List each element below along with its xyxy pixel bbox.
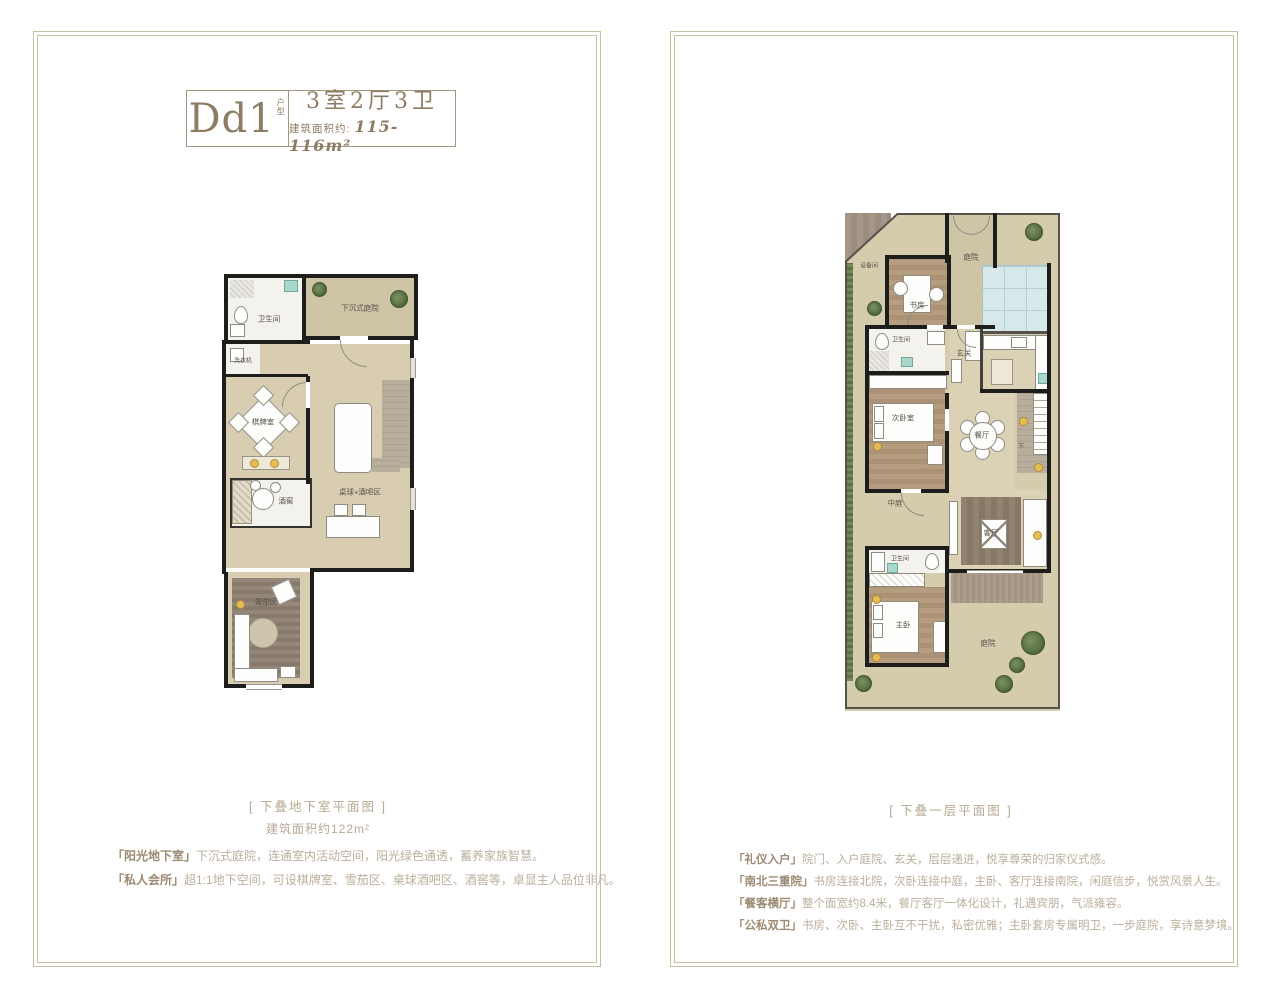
wall <box>947 255 951 329</box>
door-gap <box>927 325 943 329</box>
room-label: 玄关 <box>957 348 972 359</box>
room-label: 次卧室 <box>892 413 915 424</box>
wall <box>980 389 1049 393</box>
toilet <box>234 306 248 324</box>
entry-stairs <box>230 280 254 298</box>
wardrobe <box>869 375 947 389</box>
sink <box>230 324 245 337</box>
door-gap <box>340 336 368 340</box>
room-label: 客厅 <box>984 528 999 539</box>
unit-title-block: Dd1 户型 3室2厅3卫 建筑面积约: 115-116m² <box>186 90 456 147</box>
bar-stool <box>352 504 366 516</box>
shower <box>869 351 889 371</box>
room-label: 酒窖 <box>279 496 294 507</box>
room-label: 主卧 <box>896 620 911 631</box>
first-floor-caption: [ 下叠一层平面图 ] <box>751 800 1151 819</box>
plant <box>312 282 327 297</box>
room-label: 雪茄区 <box>255 597 278 608</box>
window <box>410 358 416 378</box>
room-label: 设备间 <box>860 261 878 270</box>
window <box>410 488 416 510</box>
water-feature <box>982 265 1050 333</box>
wall <box>869 371 949 375</box>
door-gap <box>945 409 949 431</box>
room-label: 餐厅 <box>975 430 990 441</box>
pool-edge <box>980 331 1050 334</box>
wall <box>865 325 869 493</box>
door-gap <box>901 489 921 493</box>
pillow <box>874 423 884 439</box>
chair <box>270 482 281 493</box>
feature-line: 「礼仪入户」院门、入户庭院、玄关，层层递进，悦享尊荣的归家仪式感。 <box>733 849 1239 871</box>
feature-line: 「私人会所」超1:1地下空间，可设棋牌室、雪茄区、桌球酒吧区、酒窖等，卓显主人品… <box>112 868 621 892</box>
plant <box>390 290 408 308</box>
kitchen-island <box>991 359 1013 385</box>
round-rug <box>248 618 278 648</box>
lamp <box>872 653 881 662</box>
stair-landing <box>1017 453 1047 473</box>
wall <box>224 572 228 688</box>
bar-counter <box>326 516 380 538</box>
billiard-table <box>334 403 372 473</box>
tree <box>1009 657 1025 673</box>
feature-tag: 「公私双卫」 <box>733 920 802 932</box>
room-label: 桌球+酒吧区 <box>339 487 381 498</box>
room-label: 庭院 <box>981 638 996 649</box>
feature-text: 整个面宽约8.4米，餐厅客厅一体化设计，礼遇宾朋，气派雍容。 <box>802 898 1128 910</box>
room-label: 下沉式庭院 <box>341 303 379 314</box>
unit-spec: 3室2厅3卫 <box>306 83 438 115</box>
room-label: 洗衣机 <box>234 356 252 365</box>
hedge <box>847 263 853 681</box>
tree <box>867 301 882 316</box>
chair <box>929 287 944 302</box>
stone-step <box>372 458 400 472</box>
pillow <box>873 623 883 638</box>
kitchen-sink <box>1011 337 1027 348</box>
pillow <box>873 605 883 620</box>
wall <box>310 572 314 688</box>
feature-text: 书房、次卧、主卧互不干扰，私密优雅；主卧套房专属明卫，一步庭院，享诗意梦境。 <box>802 920 1239 932</box>
bench <box>951 359 962 383</box>
feature-text: 院门、入户庭院、玄关，层层递进，悦享尊荣的归家仪式感。 <box>802 854 1113 866</box>
fence <box>845 707 1060 709</box>
unit-area-label: 建筑面积约: <box>289 123 350 135</box>
wall <box>224 274 418 278</box>
window <box>246 684 282 690</box>
wall <box>865 546 869 667</box>
feature-text: 下沉式庭院，连通室内活动空间，阳光绿色通透，蓄养家族智慧。 <box>196 849 544 863</box>
deck <box>951 573 1043 603</box>
wall <box>993 213 997 268</box>
fence <box>897 213 1060 215</box>
nightstand <box>927 445 943 465</box>
window <box>967 570 1023 574</box>
room-label: 卫生间 <box>891 554 909 563</box>
lamp <box>873 442 882 451</box>
chair <box>250 480 261 491</box>
basement-floor-plan: 卫生间 下沉式庭院 洗衣机 棋牌室 酒窖 桌球+酒吧区 雪茄区 <box>222 270 420 692</box>
fence <box>1058 213 1060 709</box>
wall <box>1047 263 1051 573</box>
feature-line: 「公私双卫」书房、次卧、主卧互不干扰，私密优雅；主卧套房专属明卫，一步庭院，享诗… <box>733 915 1239 937</box>
unit-code-cell: Dd1 户型 <box>187 91 289 146</box>
door-gap <box>306 382 310 408</box>
wall <box>414 274 418 340</box>
unit-area: 建筑面积约: 115-116m² <box>289 117 455 155</box>
wall <box>885 255 889 329</box>
feature-tag: 「私人会所」 <box>112 873 184 887</box>
wall <box>865 663 949 667</box>
wall <box>865 546 949 550</box>
sofa <box>234 668 278 682</box>
lamp <box>1033 531 1042 540</box>
room-label: 书房 <box>910 300 925 311</box>
lamp <box>1019 417 1028 426</box>
lamp <box>1034 463 1043 472</box>
tree <box>1025 223 1043 241</box>
wall <box>980 329 983 393</box>
wall <box>885 255 951 259</box>
wall <box>226 374 308 377</box>
feature-line: 「南北三重院」书房连接北院，次卧连接中庭，主卧、客厅连接南院，闲庭信步，悦赏风景… <box>733 871 1239 893</box>
wall <box>224 274 228 344</box>
feature-tag: 「阳光地下室」 <box>112 849 196 863</box>
room-label: 下 <box>1018 442 1024 451</box>
room-label: 中庭 <box>888 498 903 509</box>
chair <box>893 281 908 296</box>
room-label: 卫生间 <box>892 335 910 344</box>
page: { "unit": { "code": "Dd1", "code_suffix"… <box>0 0 1269 999</box>
lamp <box>872 595 881 604</box>
vanity <box>871 552 885 572</box>
wall <box>310 568 414 572</box>
unit-code-suffix: 户型 <box>277 98 287 116</box>
feature-tag: 「餐客横厅」 <box>733 898 802 910</box>
tree <box>995 675 1013 693</box>
basement-caption: [ 下叠地下室平面图 ] <box>118 796 518 815</box>
door-gap <box>957 325 975 329</box>
shower-mat <box>284 280 298 292</box>
wall <box>302 274 306 344</box>
feature-line: 「阳光地下室」下沉式庭院，连通室内活动空间，阳光绿色通透，蓄养家族智慧。 <box>112 844 621 868</box>
wine-rack <box>232 480 252 524</box>
room-label: 棋牌室 <box>252 417 275 428</box>
feature-text: 书房连接北院，次卧连接中庭，主卧、客厅连接南院，闲庭信步，悦赏风景人生。 <box>814 876 1228 888</box>
room-label: 卫生间 <box>258 314 281 325</box>
bar-stool <box>334 504 348 516</box>
shower-mat <box>901 357 913 367</box>
tree <box>855 675 872 692</box>
vanity <box>927 331 945 345</box>
tv-cabinet <box>949 501 958 555</box>
tree <box>1021 631 1045 655</box>
wall <box>224 340 310 344</box>
lamp <box>270 459 279 468</box>
toilet <box>925 553 939 570</box>
pillow <box>874 406 884 422</box>
lamp <box>236 600 245 609</box>
basement-subcaption: 建筑面积约122m² <box>118 820 518 837</box>
lamp <box>250 459 259 468</box>
first-floor-plan: 设备间 庭院 书房 卫生间 玄关 次卧室 餐厅 下 客厅 中庭 卫生间 主卧 庭… <box>845 213 1060 711</box>
feature-text: 超1:1地下空间，可设棋牌室、雪茄区、桌球酒吧区、酒窖等，卓显主人品位非凡。 <box>184 873 621 887</box>
side-table <box>280 666 296 678</box>
feature-line: 「餐客横厅」整个面宽约8.4米，餐厅客厅一体化设计，礼遇宾朋，气派雍容。 <box>733 893 1239 915</box>
feature-tag: 「南北三重院」 <box>733 876 814 888</box>
feature-tag: 「礼仪入户」 <box>733 854 802 866</box>
stone-feature-wall <box>382 380 412 468</box>
sofa <box>234 614 250 674</box>
basement-features: 「阳光地下室」下沉式庭院，连通室内活动空间，阳光绿色通透，蓄养家族智慧。 「私人… <box>112 844 621 892</box>
toilet <box>875 333 889 350</box>
walkin-closet <box>869 573 925 587</box>
room-label: 庭院 <box>964 252 979 263</box>
first-floor-features: 「礼仪入户」院门、入户庭院、玄关，层层递进，悦享尊荣的归家仪式感。 「南北三重院… <box>733 849 1239 937</box>
shower-mat <box>887 563 898 573</box>
unit-code: Dd1 <box>188 99 274 139</box>
wall <box>945 546 949 667</box>
wall <box>945 393 949 493</box>
unit-spec-cell: 3室2厅3卫 建筑面积约: 115-116m² <box>289 91 455 146</box>
